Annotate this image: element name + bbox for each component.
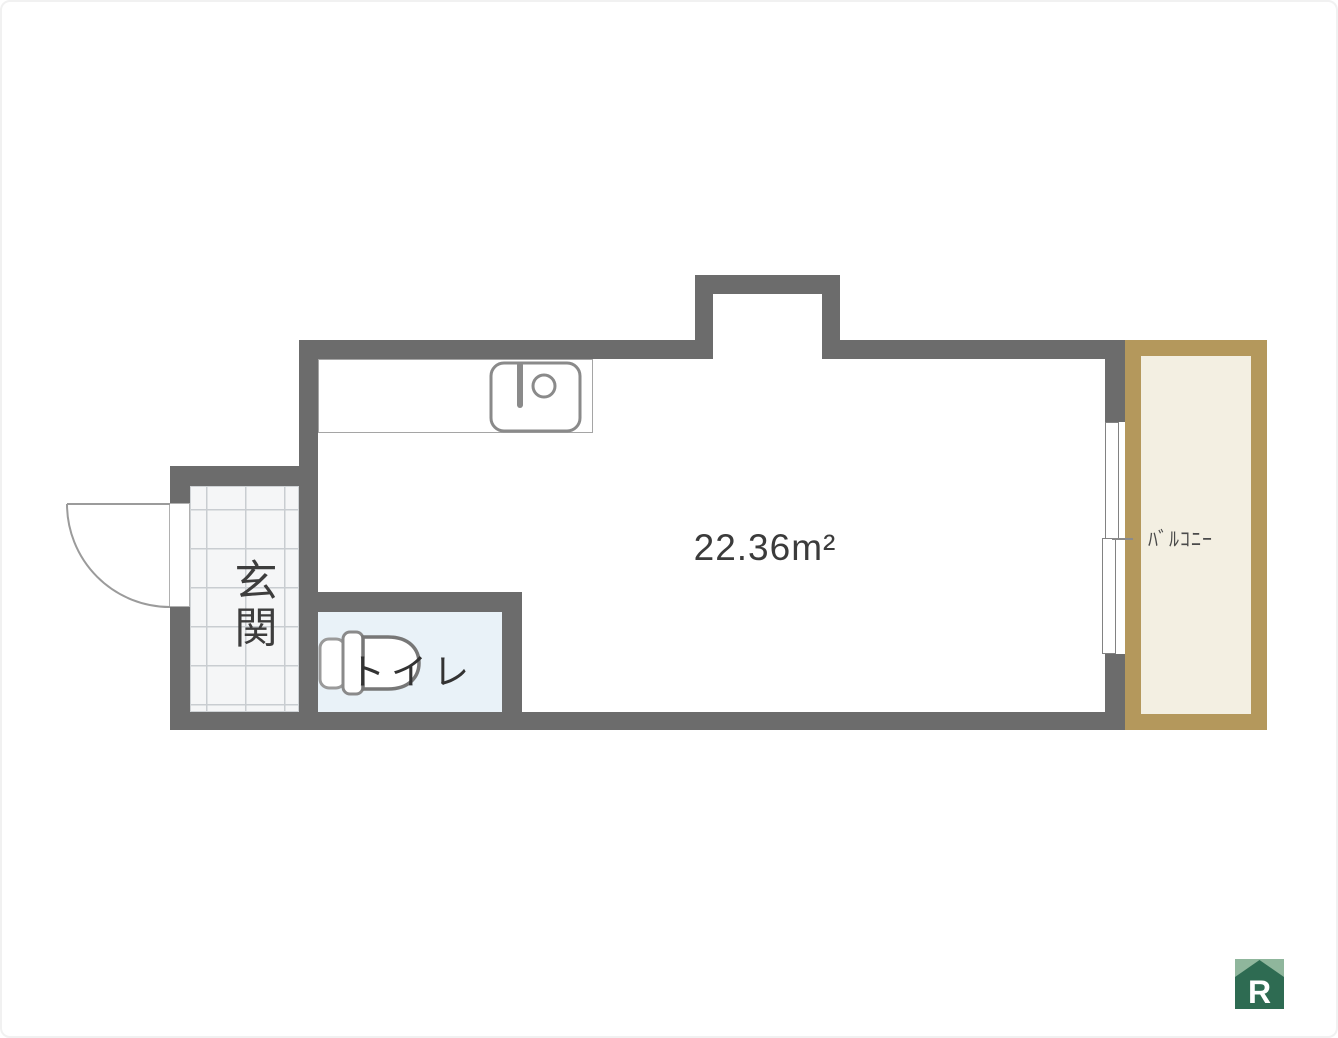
wall-segment <box>299 340 318 730</box>
sliding-window-icon <box>1105 422 1119 540</box>
balcony-label: ﾊﾞﾙｺﾆｰ <box>1148 523 1213 552</box>
wall-segment <box>502 592 522 712</box>
wall-segment <box>170 466 190 503</box>
house-logo-icon: R <box>1235 959 1284 1010</box>
logo-letter: R <box>1248 974 1271 1010</box>
sliding-window-icon <box>1102 538 1116 654</box>
wall-segment <box>170 712 1125 730</box>
toilet-label: トイレ <box>349 643 475 695</box>
door-swing-icon <box>67 504 170 607</box>
entrance-label: 玄関 <box>224 558 274 652</box>
wall-segment <box>695 275 840 294</box>
wall-segment <box>299 340 695 359</box>
wall-segment <box>822 275 840 359</box>
wall-segment <box>840 340 1125 359</box>
sliding-window-icon <box>1112 538 1133 540</box>
entrance-door-leaf <box>169 503 190 607</box>
main-room-area-label: 22.36m² <box>665 527 865 569</box>
wall-segment <box>1105 340 1125 422</box>
wall-segment <box>318 592 522 612</box>
kitchen-counter <box>318 359 593 433</box>
wall-segment <box>1105 654 1125 730</box>
floor-plan-canvas: ﾊﾞﾙｺﾆｰ 玄関 <box>0 0 1338 1038</box>
